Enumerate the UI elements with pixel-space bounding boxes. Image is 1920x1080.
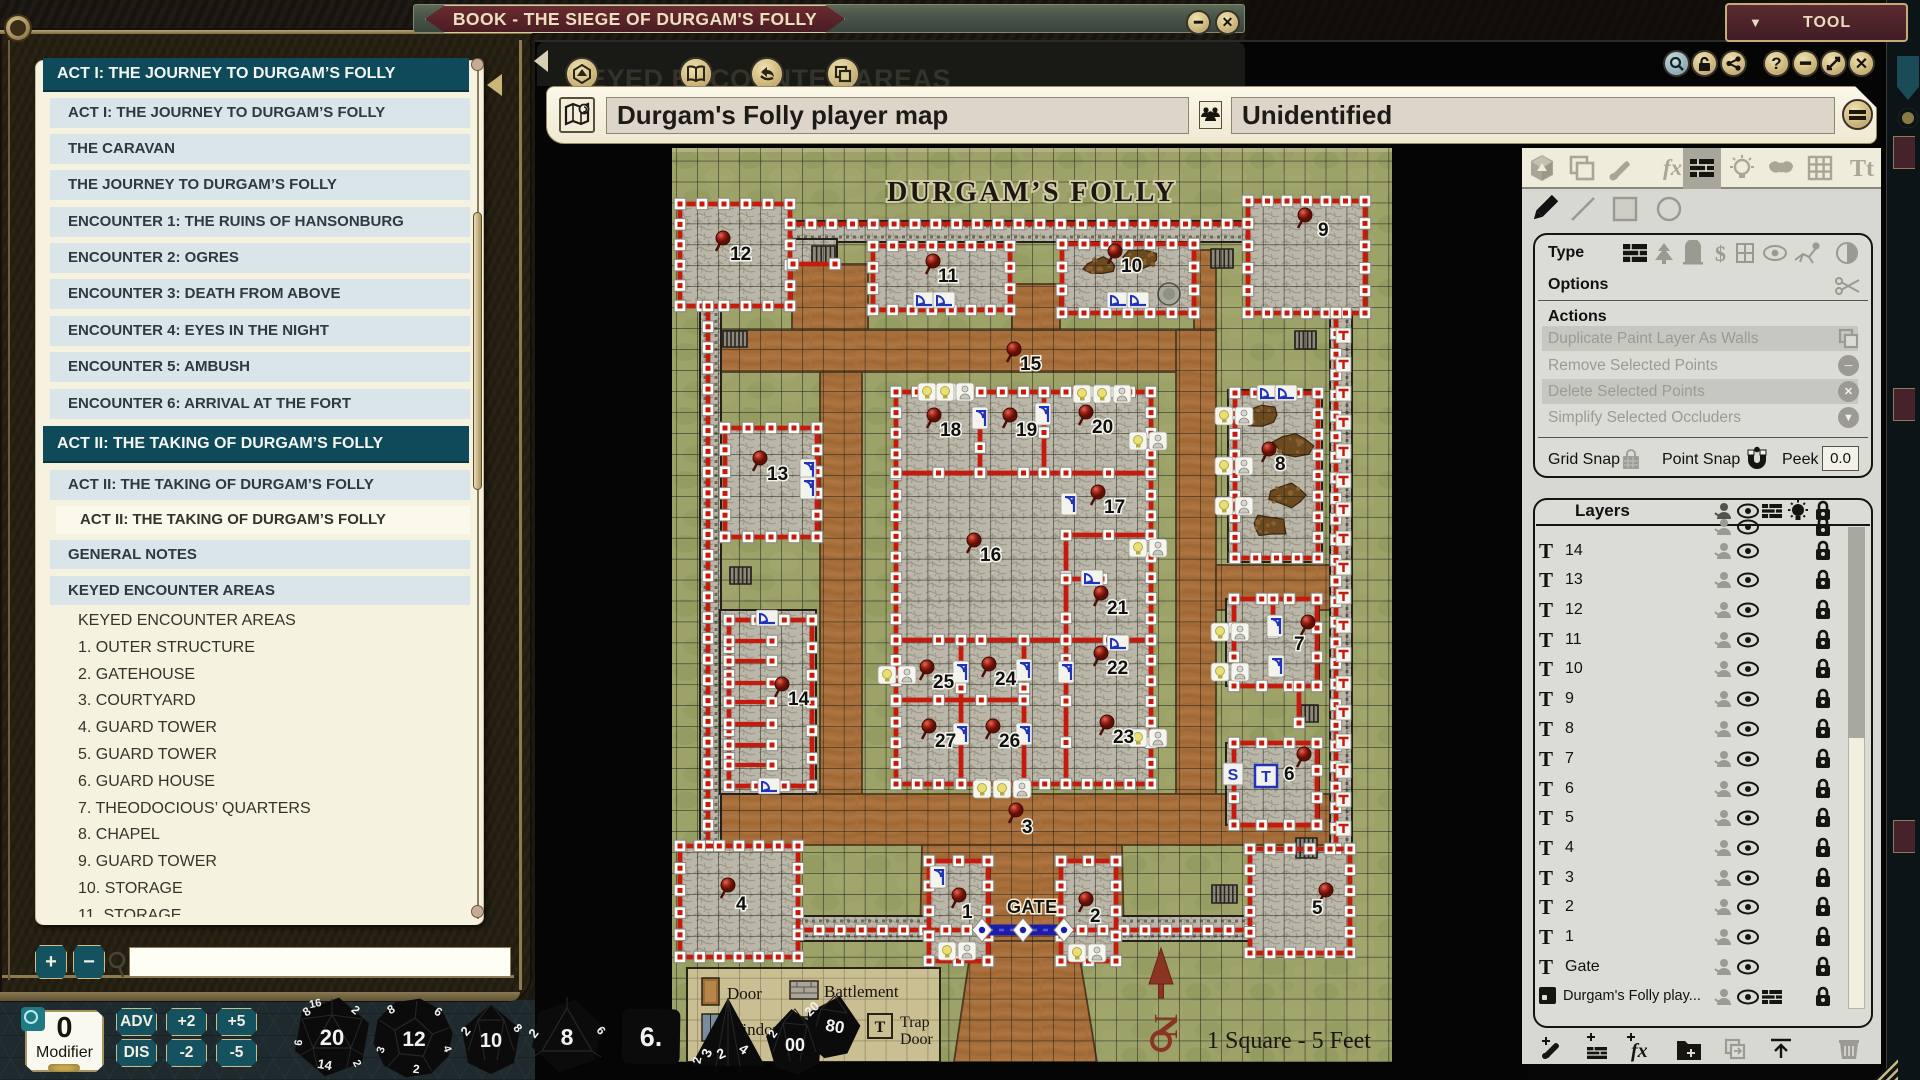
svg-text:16: 16 <box>308 997 322 1011</box>
svg-text:15: 15 <box>1020 354 1042 375</box>
svg-text:12: 12 <box>402 1028 425 1051</box>
svg-text:16: 16 <box>980 545 1001 566</box>
svg-text:7: 7 <box>1294 634 1305 655</box>
svg-text:18: 18 <box>940 420 961 441</box>
svg-text:25: 25 <box>933 672 955 693</box>
svg-text:Trap: Trap <box>900 1014 930 1031</box>
svg-text:6: 6 <box>1284 764 1295 785</box>
svg-text:17: 17 <box>1104 497 1125 518</box>
svg-text:8: 8 <box>561 1024 574 1050</box>
svg-text:2: 2 <box>1090 906 1101 927</box>
svg-text:24: 24 <box>995 669 1017 690</box>
svg-text:19: 19 <box>1016 420 1037 441</box>
svg-text:27: 27 <box>935 731 956 752</box>
svg-text:20: 20 <box>320 1025 344 1050</box>
svg-text:10: 10 <box>1121 256 1142 277</box>
svg-text:26: 26 <box>999 731 1020 752</box>
svg-text:6: 6 <box>293 1039 305 1046</box>
svg-text:S: S <box>1228 767 1239 784</box>
svg-text:DURGAM’S FOLLY: DURGAM’S FOLLY <box>887 177 1177 208</box>
svg-text:20: 20 <box>1092 417 1113 438</box>
svg-text:8: 8 <box>1275 454 1286 475</box>
svg-text:14: 14 <box>788 689 810 710</box>
svg-text:11: 11 <box>938 266 959 287</box>
svg-text:$: $ <box>1715 241 1726 266</box>
svg-text:4: 4 <box>736 894 747 915</box>
svg-text:1 Square - 5 Feet: 1 Square - 5 Feet <box>1207 1028 1371 1054</box>
svg-text:fx: fx <box>1663 155 1682 180</box>
svg-text:GATE: GATE <box>1007 897 1058 917</box>
svg-text:13: 13 <box>767 464 788 485</box>
svg-text:9: 9 <box>1318 220 1329 241</box>
svg-text:23: 23 <box>1113 727 1134 748</box>
svg-text:fx: fx <box>1631 1040 1648 1062</box>
svg-text:22: 22 <box>1107 658 1128 679</box>
svg-text:Tt: Tt <box>1850 156 1874 182</box>
svg-text:12: 12 <box>730 244 751 265</box>
svg-text:1: 1 <box>962 902 973 923</box>
svg-text:00: 00 <box>785 1035 805 1055</box>
svg-text:10: 10 <box>480 1030 502 1052</box>
svg-text:6.: 6. <box>640 1022 663 1052</box>
svg-text:21: 21 <box>1107 598 1129 619</box>
svg-text:80: 80 <box>824 1016 846 1038</box>
svg-text:3: 3 <box>1022 817 1033 838</box>
svg-text:Door: Door <box>900 1031 934 1048</box>
svg-text:T: T <box>1261 769 1271 786</box>
svg-text:5: 5 <box>1312 898 1323 919</box>
